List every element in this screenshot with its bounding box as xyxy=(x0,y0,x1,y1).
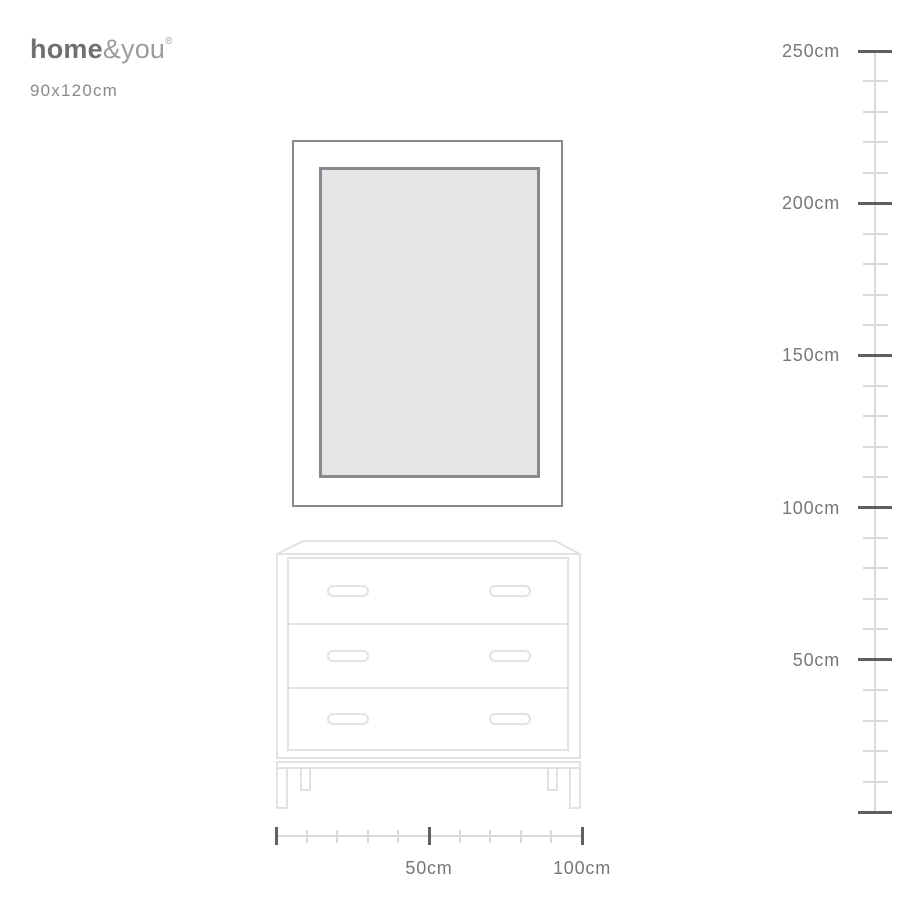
vertical-ruler-minor-tick xyxy=(863,628,888,630)
brand-logo: home&you® xyxy=(30,36,173,63)
mirror-glass xyxy=(319,167,540,478)
vertical-ruler-minor-tick xyxy=(863,415,888,417)
dresser-body xyxy=(277,554,580,758)
vertical-ruler-label: 100cm xyxy=(782,496,840,520)
vertical-ruler-major-tick xyxy=(858,811,892,814)
horizontal-ruler-minor-tick xyxy=(489,830,491,843)
horizontal-ruler-major-tick xyxy=(581,827,584,845)
vertical-ruler-major-tick xyxy=(858,658,892,661)
vertical-ruler-minor-tick xyxy=(863,720,888,722)
dresser-leg-front-right xyxy=(570,768,580,808)
vertical-ruler-major-tick xyxy=(858,202,892,205)
vertical-ruler-label: 150cm xyxy=(782,343,840,367)
horizontal-ruler-major-tick xyxy=(428,827,431,845)
vertical-ruler-major-tick xyxy=(858,50,892,53)
vertical-ruler-minor-tick xyxy=(863,111,888,113)
drawer-handle xyxy=(490,586,530,596)
vertical-ruler-major-tick xyxy=(858,354,892,357)
horizontal-ruler-minor-tick xyxy=(336,830,338,843)
product-dimension-diagram: home&you® 90x120cm 250cm200cm150cm100cm5… xyxy=(0,0,920,920)
horizontal-ruler-minor-tick xyxy=(397,830,399,843)
vertical-ruler-minor-tick xyxy=(863,537,888,539)
brand-name-bold: home xyxy=(30,34,103,64)
drawer-handle xyxy=(328,586,368,596)
vertical-ruler-minor-tick xyxy=(863,476,888,478)
product-size-label: 90x120cm xyxy=(30,81,118,101)
drawer-handle xyxy=(490,651,530,661)
vertical-ruler-label: 250cm xyxy=(782,39,840,63)
dresser-leg-back-right xyxy=(548,768,557,790)
dresser-leg-front-left xyxy=(277,768,287,808)
vertical-ruler-minor-tick xyxy=(863,233,888,235)
vertical-ruler-minor-tick xyxy=(863,80,888,82)
vertical-ruler-minor-tick xyxy=(863,781,888,783)
horizontal-ruler-minor-tick xyxy=(306,830,308,843)
horizontal-ruler-minor-tick xyxy=(520,830,522,843)
drawer-handle xyxy=(490,714,530,724)
vertical-ruler-line xyxy=(874,51,876,812)
vertical-ruler-minor-tick xyxy=(863,172,888,174)
vertical-ruler-minor-tick xyxy=(863,324,888,326)
dresser-drawing xyxy=(274,538,584,814)
horizontal-ruler-label: 100cm xyxy=(522,858,642,879)
dresser-leg-back-left xyxy=(301,768,310,790)
dresser-base-rail xyxy=(277,762,580,768)
brand-name-light: &you xyxy=(103,34,165,64)
horizontal-ruler-minor-tick xyxy=(367,830,369,843)
vertical-ruler-minor-tick xyxy=(863,567,888,569)
horizontal-ruler-label: 50cm xyxy=(369,858,489,879)
horizontal-ruler-minor-tick xyxy=(550,830,552,843)
vertical-ruler-major-tick xyxy=(858,506,892,509)
registered-trademark-icon: ® xyxy=(165,36,172,47)
vertical-ruler-minor-tick xyxy=(863,689,888,691)
vertical-ruler-minor-tick xyxy=(863,598,888,600)
vertical-ruler-minor-tick xyxy=(863,385,888,387)
drawer-handle xyxy=(328,714,368,724)
horizontal-ruler-minor-tick xyxy=(459,830,461,843)
dresser-top-surface xyxy=(277,541,580,554)
horizontal-ruler-major-tick xyxy=(275,827,278,845)
vertical-ruler-minor-tick xyxy=(863,446,888,448)
vertical-ruler-label: 200cm xyxy=(782,191,840,215)
vertical-ruler-minor-tick xyxy=(863,294,888,296)
drawer-handle xyxy=(328,651,368,661)
vertical-ruler-label: 50cm xyxy=(793,648,840,672)
vertical-ruler-minor-tick xyxy=(863,263,888,265)
vertical-ruler-minor-tick xyxy=(863,750,888,752)
vertical-ruler-minor-tick xyxy=(863,141,888,143)
